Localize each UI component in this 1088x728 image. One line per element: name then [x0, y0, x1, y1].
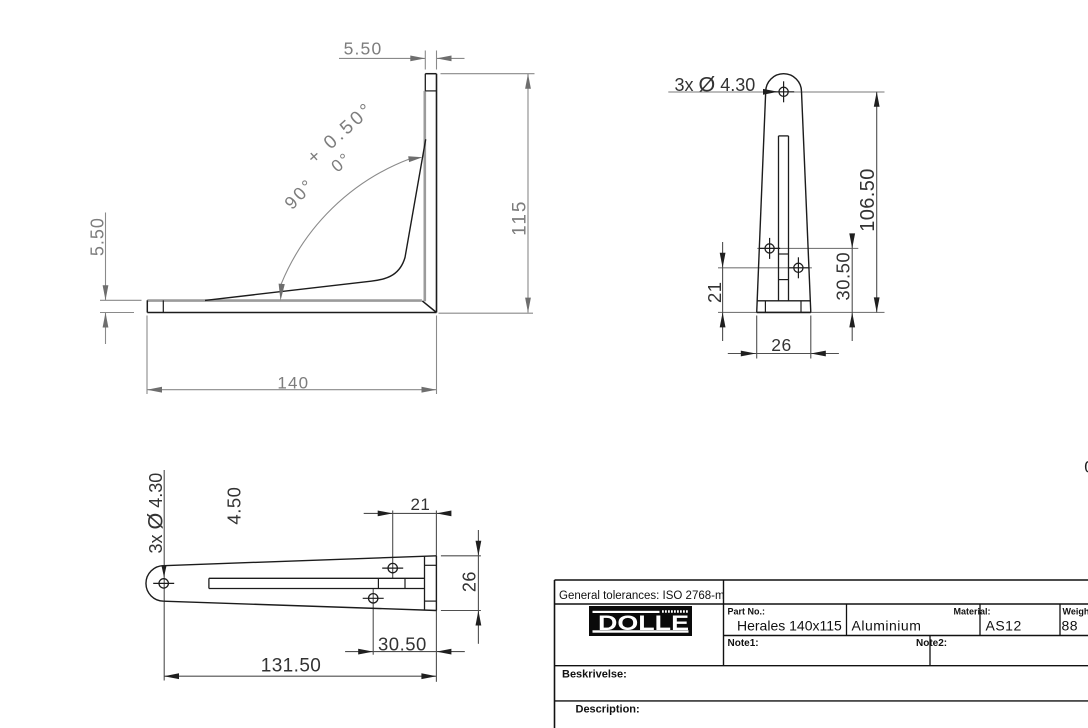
svg-text:21: 21	[704, 281, 725, 303]
svg-text:106.50: 106.50	[857, 168, 879, 232]
svg-text:90°: 90°	[280, 174, 319, 213]
svg-text:Note1:: Note1:	[728, 638, 759, 649]
svg-text:Beskrivelse:: Beskrivelse:	[562, 669, 627, 681]
svg-text:AS12: AS12	[986, 618, 1022, 634]
svg-text:General tolerances: ISO 2768-m: General tolerances: ISO 2768-m	[559, 590, 725, 602]
svg-text:DOLLE: DOLLE	[598, 612, 689, 635]
svg-text:88: 88	[1062, 618, 1079, 634]
svg-text:Note2:: Note2:	[916, 638, 947, 649]
svg-text:Aluminium: Aluminium	[852, 618, 922, 634]
svg-text:Herales 140x115: Herales 140x115	[737, 618, 842, 634]
svg-text:0: 0	[1084, 457, 1088, 476]
svg-text:Weight:: Weight:	[1063, 607, 1088, 617]
svg-text:5.50: 5.50	[87, 217, 107, 256]
svg-text:4.50: 4.50	[224, 487, 245, 525]
svg-text:30.50: 30.50	[378, 633, 427, 654]
svg-text:26: 26	[459, 571, 479, 592]
svg-text:5.50: 5.50	[344, 39, 383, 59]
svg-text:131.50: 131.50	[261, 656, 322, 677]
svg-text:Description:: Description:	[576, 704, 640, 716]
svg-text:140: 140	[277, 374, 309, 393]
svg-text:3x Ø 4.30: 3x Ø 4.30	[675, 73, 756, 97]
svg-text:3x Ø 4.30: 3x Ø 4.30	[144, 473, 168, 554]
svg-text:21: 21	[410, 495, 430, 514]
svg-text:Material:: Material:	[954, 607, 991, 617]
svg-text:30.50: 30.50	[832, 252, 853, 301]
svg-text:Part No.:: Part No.:	[728, 607, 766, 617]
svg-text:26: 26	[771, 335, 791, 355]
svg-text:115: 115	[510, 200, 531, 236]
